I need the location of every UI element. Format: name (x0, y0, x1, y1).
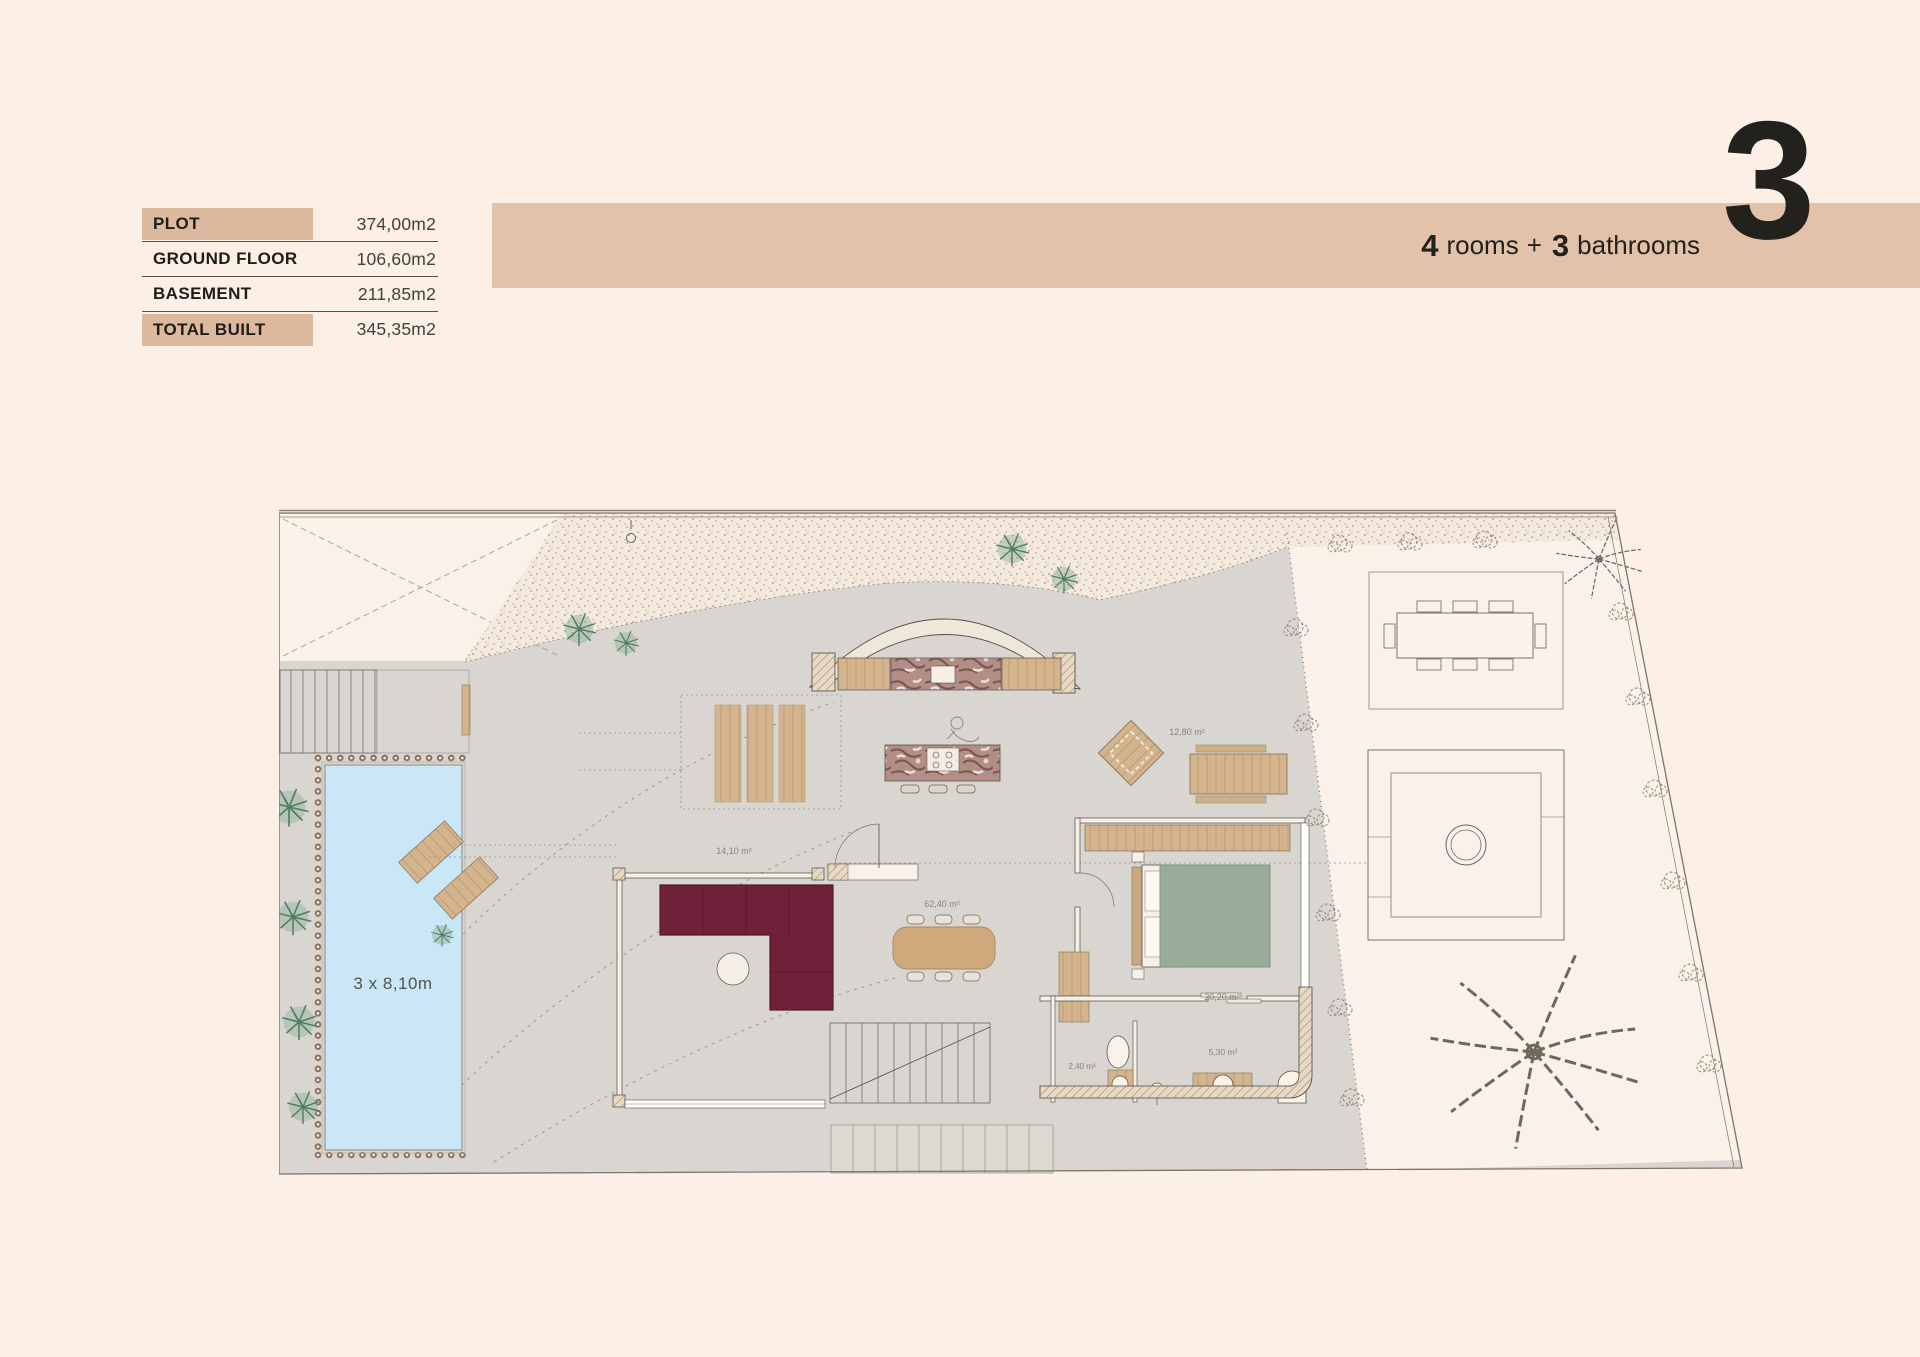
exterior-stairs-left (280, 670, 470, 753)
garden-table (1397, 613, 1533, 658)
side-table (717, 953, 749, 985)
rooms-bathrooms-summary: 4 rooms + 3 bathrooms (1100, 203, 1700, 288)
spec-value: 211,85m2 (358, 284, 438, 305)
headboard (1132, 867, 1142, 965)
bedroom-window (1301, 823, 1309, 989)
spec-table: PLOT 374,00m2 GROUND FLOOR 106,60m2 BASE… (142, 207, 438, 347)
spec-row-plot: PLOT 374,00m2 (142, 207, 438, 242)
area-label-terrace: 14,10 m² (716, 846, 752, 856)
dresser (1059, 952, 1089, 1022)
rooms-count: 4 (1421, 228, 1438, 264)
dining-table (893, 927, 995, 969)
pool-size-label: 3 x 8,10m (353, 974, 432, 993)
planter (462, 685, 470, 735)
bed-duvet (1160, 865, 1270, 967)
spec-row-total-built: TOTAL BUILT 345,35m2 (142, 312, 438, 347)
spec-value: 106,60m2 (357, 249, 438, 270)
kitchen-cabinet (838, 658, 890, 690)
basement-stairs (831, 1125, 1053, 1173)
plus-sign: + (1527, 230, 1542, 261)
bathrooms-word: bathrooms (1577, 230, 1700, 261)
nightstand (1132, 969, 1144, 979)
interior-stairs (830, 1023, 990, 1103)
spec-label: TOTAL BUILT (142, 314, 313, 346)
area-label-living: 62,40 m² (924, 899, 960, 909)
spec-label: GROUND FLOOR (142, 243, 313, 275)
rooms-word: rooms (1446, 230, 1518, 261)
outdoor-table (1190, 754, 1287, 794)
kitchen-cabinet (1002, 658, 1061, 690)
area-label-toilet: 2,40 m² (1068, 1062, 1095, 1071)
cooktop (927, 748, 959, 771)
page: PLOT 374,00m2 GROUND FLOOR 106,60m2 BASE… (0, 0, 1920, 1357)
spec-row-ground-floor: GROUND FLOOR 106,60m2 (142, 242, 438, 277)
kitchen-sink (931, 666, 955, 683)
spec-value: 345,35m2 (357, 319, 438, 340)
wardrobe (1085, 825, 1290, 851)
floor-plan-drawing: 3 x 8,10m (279, 507, 1743, 1177)
nightstand (1132, 852, 1144, 862)
spec-row-basement: BASEMENT 211,85m2 (142, 277, 438, 312)
floor-number: 3 (1722, 96, 1812, 264)
bathrooms-count: 3 (1552, 228, 1569, 264)
area-label-bedroom: 20,20 m² (1204, 992, 1240, 1002)
spec-value: 374,00m2 (357, 214, 438, 235)
area-label-bathroom: 5,30 m² (1209, 1047, 1238, 1057)
spec-label: BASEMENT (142, 278, 313, 310)
spec-label: PLOT (142, 208, 313, 240)
floor-plan: 3 x 8,10m (279, 507, 1743, 1177)
toilet (1107, 1036, 1129, 1068)
pool: 3 x 8,10m (318, 758, 465, 1155)
area-label-lounge: 12,80 m² (1169, 727, 1205, 737)
